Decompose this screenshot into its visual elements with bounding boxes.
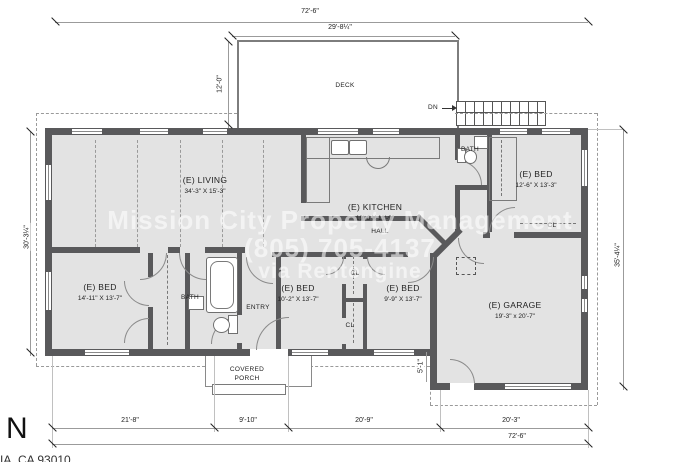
dim-line: [623, 130, 624, 390]
porch-label-line1: COVERED: [230, 366, 264, 373]
porch-step: [212, 384, 286, 395]
overhang-dashline: [36, 366, 205, 367]
bath-label-lower: BATH: [181, 294, 199, 301]
wall: [430, 253, 437, 383]
dim-seg-bed-wing: 21'-8": [119, 417, 141, 424]
kitchen-sink: [349, 140, 367, 155]
wall: [363, 284, 367, 349]
wall: [430, 383, 450, 390]
window: [374, 350, 414, 355]
dim-line: [228, 42, 229, 128]
window: [292, 350, 328, 355]
extension-line: [288, 356, 289, 432]
room-label-garage: (E) GARAGE: [488, 301, 541, 310]
overhang-dashline: [36, 113, 37, 366]
wall: [455, 185, 487, 190]
closet-dashline: [167, 255, 168, 345]
closet-label-lower: CL: [346, 322, 355, 329]
dim-garage-offset: 5'-1": [418, 357, 425, 375]
window: [72, 129, 102, 134]
room-size-bed-sw: 14'-11" X 13'-7": [78, 295, 122, 302]
bathtub-inner: [210, 261, 234, 309]
dim-line: [426, 352, 427, 382]
extension-line: [588, 390, 589, 448]
porch-label-line2: PORCH: [235, 375, 260, 382]
dim-line: [52, 428, 588, 429]
wall: [342, 298, 367, 302]
window: [373, 129, 399, 134]
room-size-bed-ne: 12'-6" X 13'-3": [515, 182, 556, 189]
address-partial: IA, CA 93010: [0, 453, 71, 462]
overhang-dashline: [455, 113, 597, 114]
dim-overall-top: 72'-6": [299, 8, 321, 15]
wall: [342, 344, 346, 349]
room-size-bed-s2: 9'-9" X 13'-7": [384, 296, 421, 303]
window: [85, 350, 129, 355]
room-label-living: (E) LIVING: [183, 176, 228, 185]
dim-seg-mid: 20'-9": [353, 417, 375, 424]
window: [582, 299, 587, 312]
overhang-dashline: [36, 113, 237, 114]
watermark-line1: Mission City Property Management: [107, 205, 572, 236]
north-indicator: N: [6, 412, 28, 446]
overhang-dashline: [430, 405, 597, 406]
room-label-bed-sw: (E) BED: [83, 283, 116, 292]
kitchen-sink: [331, 140, 349, 155]
overhang-dashline: [310, 366, 430, 367]
window: [203, 129, 227, 134]
water-heater: [456, 257, 476, 275]
sliding-door: [318, 129, 358, 134]
bath-label-upper: BATH: [461, 146, 479, 153]
watermark-line3: via Rentengine: [258, 260, 421, 284]
window: [582, 150, 587, 186]
dim-left-depth: 30'-3¼": [24, 223, 31, 251]
down-arrow-icon: [452, 105, 457, 111]
dim-line: [52, 444, 588, 445]
dim-right-depth: 35'-4¼": [615, 241, 622, 269]
dim-line: [232, 36, 455, 37]
extension-line: [588, 129, 623, 130]
wardrobe-dashline: [501, 140, 502, 196]
window: [500, 129, 527, 134]
down-arrow-line: [442, 108, 452, 109]
extension-line: [52, 356, 53, 448]
toilet-bowl: [213, 317, 230, 333]
dim-seg-porch: 9'-10": [237, 417, 259, 424]
floor-plan: DECK DN: [0, 0, 680, 462]
dim-line: [55, 22, 588, 23]
dim-seg-garage: 20'-3": [500, 417, 522, 424]
down-label: DN: [428, 104, 438, 111]
window: [140, 129, 168, 134]
dim-deck-depth: 12'-0": [217, 73, 224, 95]
kitchen-counter: [306, 137, 330, 203]
overhang-dashline: [597, 113, 598, 405]
window: [542, 129, 570, 134]
window: [46, 272, 51, 310]
room-label-bed-s1: (E) BED: [281, 284, 314, 293]
dim-overall-bottom: 72'-6": [506, 433, 528, 440]
room-size-bed-s1: 10'-2" X 13'-7": [277, 296, 318, 303]
room-label-bed-s2: (E) BED: [386, 284, 419, 293]
extension-line: [214, 356, 215, 432]
room-label-bed-ne: (E) BED: [519, 170, 552, 179]
garage-door: [505, 384, 571, 389]
window: [582, 276, 587, 289]
entry-label: ENTRY: [246, 304, 269, 311]
dim-deck-width: 29'-8¼": [326, 24, 354, 31]
wall: [52, 247, 140, 253]
wardrobe: [489, 137, 517, 201]
window: [46, 165, 51, 200]
beam-dashline: [95, 140, 96, 247]
room-size-garage: 19'-3" x 20'-7": [495, 313, 535, 320]
room-size-living: 34'-3" X 15'-3": [184, 188, 225, 195]
wall: [45, 349, 250, 356]
deck-label: DECK: [335, 82, 354, 89]
